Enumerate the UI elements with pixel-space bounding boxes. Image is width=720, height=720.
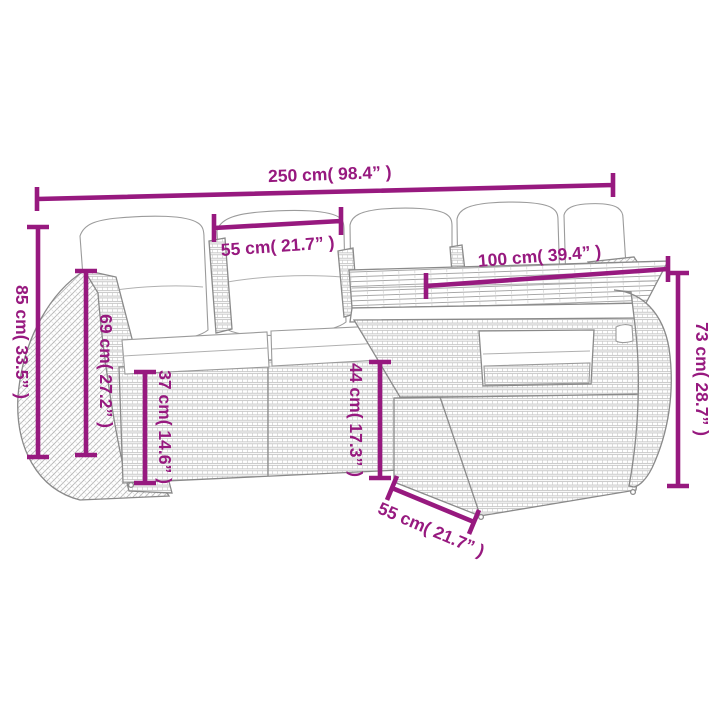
corner-seat-base (484, 363, 590, 385)
right-armrest-notch (616, 325, 633, 343)
back-pillow-2 (217, 210, 346, 335)
dim-label-total-width: 250 cm( 98.4” ) (268, 162, 392, 186)
table-foot-right (631, 490, 636, 495)
seat-cushion-1 (122, 332, 269, 374)
dim-label-back-height: 69 cm( 27.2” ) (96, 314, 116, 428)
dim-label-seat-height: 37 cm( 14.6” ) (155, 370, 175, 484)
dim-label-total-height: 85 cm( 33.5” ) (12, 285, 32, 399)
sofa-foot (129, 483, 134, 488)
dimension-diagram-page: 250 cm( 98.4” ) 55 cm( 21.7” ) 100 cm( 3… (0, 0, 720, 720)
table-base-lower (394, 394, 648, 516)
dim-label-table-height: 73 cm( 28.7” ) (692, 322, 712, 436)
dim-label-under-table-height: 44 cm( 17.3” ) (346, 363, 366, 477)
table-foot-left (479, 515, 484, 520)
dimension-diagram: 250 cm( 98.4” ) 55 cm( 21.7” ) 100 cm( 3… (0, 0, 720, 720)
dim-table-height: 73 cm( 28.7” ) (667, 273, 712, 486)
